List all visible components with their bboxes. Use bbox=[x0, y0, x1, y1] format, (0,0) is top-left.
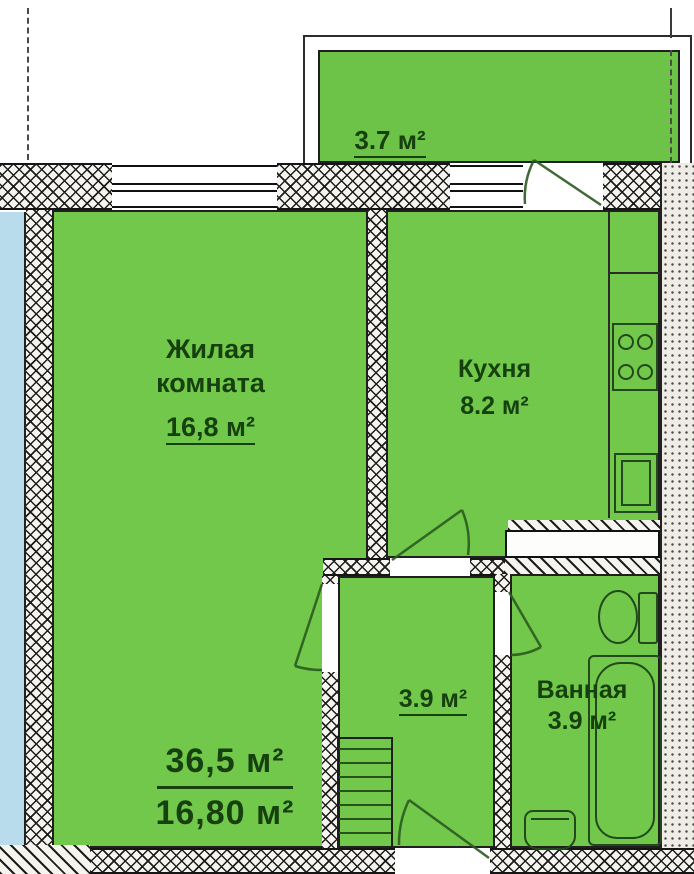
kitchen-window bbox=[450, 165, 523, 208]
wall-bottom-right bbox=[490, 848, 694, 874]
wall-top-right bbox=[603, 163, 663, 210]
wall-top-middle bbox=[277, 163, 450, 210]
wall-hall-bath-stub bbox=[495, 574, 510, 592]
stove-burner-icon bbox=[637, 364, 653, 380]
living-room-name-2: комната bbox=[118, 367, 303, 401]
kitchen-counter-divider bbox=[608, 272, 660, 274]
kitchen-area: 8.2 м² bbox=[432, 391, 557, 422]
kitchen-sink-basin bbox=[621, 460, 651, 506]
living-room-area: 16,8 м² bbox=[118, 411, 303, 445]
living-door-opening bbox=[322, 584, 338, 672]
wall-living-kitchen bbox=[368, 210, 386, 558]
wall-right bbox=[660, 163, 694, 874]
kitchen-sink-icon bbox=[614, 453, 658, 513]
kitchen-name: Кухня bbox=[432, 354, 557, 385]
wall-top-left bbox=[0, 163, 112, 210]
vent-duct bbox=[505, 530, 660, 558]
total-area-value: 36,5 м² bbox=[157, 740, 292, 789]
stove-burner-icon bbox=[618, 334, 634, 350]
toilet-tank-icon bbox=[638, 592, 658, 644]
wall-left bbox=[26, 210, 52, 848]
stove-icon bbox=[612, 323, 658, 391]
living-room-name-1: Жилая bbox=[118, 333, 303, 367]
floor-plan: 3.7 м² Жилая комната 16,8 м² Кухня 8.2 м… bbox=[0, 0, 694, 874]
kitchen-label: Кухня 8.2 м² bbox=[432, 354, 557, 423]
bathroom-area: 3.9 м² bbox=[518, 706, 646, 737]
washbasin-icon bbox=[524, 810, 576, 850]
total-living-area-value: 16,80 м² bbox=[155, 789, 294, 835]
boundary-line-right-top bbox=[670, 8, 672, 38]
neighbor-area bbox=[0, 212, 26, 845]
duct-top-strip bbox=[508, 520, 660, 530]
bathroom-door-opening bbox=[495, 592, 510, 655]
duct-bottom-strip bbox=[505, 558, 660, 574]
wall-living-hall-stub bbox=[322, 576, 338, 584]
hallway-area-value: 3.9 м² bbox=[399, 685, 468, 716]
balcony-area-value: 3.7 м² bbox=[354, 125, 425, 158]
stove-burner-icon bbox=[618, 364, 634, 380]
closet-icon bbox=[337, 737, 393, 848]
boundary-line-right bbox=[670, 50, 672, 163]
living-window bbox=[112, 165, 277, 208]
totals-block: 36,5 м² 16,80 м² bbox=[125, 740, 325, 834]
toilet-bowl-icon bbox=[598, 590, 638, 644]
living-room-area-value: 16,8 м² bbox=[166, 412, 255, 445]
hallway-label: 3.9 м² bbox=[378, 684, 488, 715]
bathroom-name: Ванная bbox=[518, 675, 646, 706]
kitchen-counter-line bbox=[608, 212, 610, 518]
kitchen-door-opening bbox=[390, 558, 470, 576]
balcony-area-label: 3.7 м² bbox=[335, 124, 445, 157]
wall-bottom-left bbox=[90, 848, 395, 874]
boundary-line-left bbox=[27, 8, 29, 160]
bathroom-label: Ванная 3.9 м² bbox=[518, 675, 646, 738]
wall-hall-top-left bbox=[323, 558, 390, 576]
wall-bottom-corner bbox=[0, 845, 90, 874]
wall-hall-bath bbox=[495, 655, 510, 848]
balcony-door-opening bbox=[523, 165, 603, 208]
living-room-label: Жилая комната 16,8 м² bbox=[118, 333, 303, 444]
stove-burner-icon bbox=[637, 334, 653, 350]
entrance-door-opening bbox=[395, 848, 490, 874]
washbasin-line bbox=[531, 818, 569, 820]
